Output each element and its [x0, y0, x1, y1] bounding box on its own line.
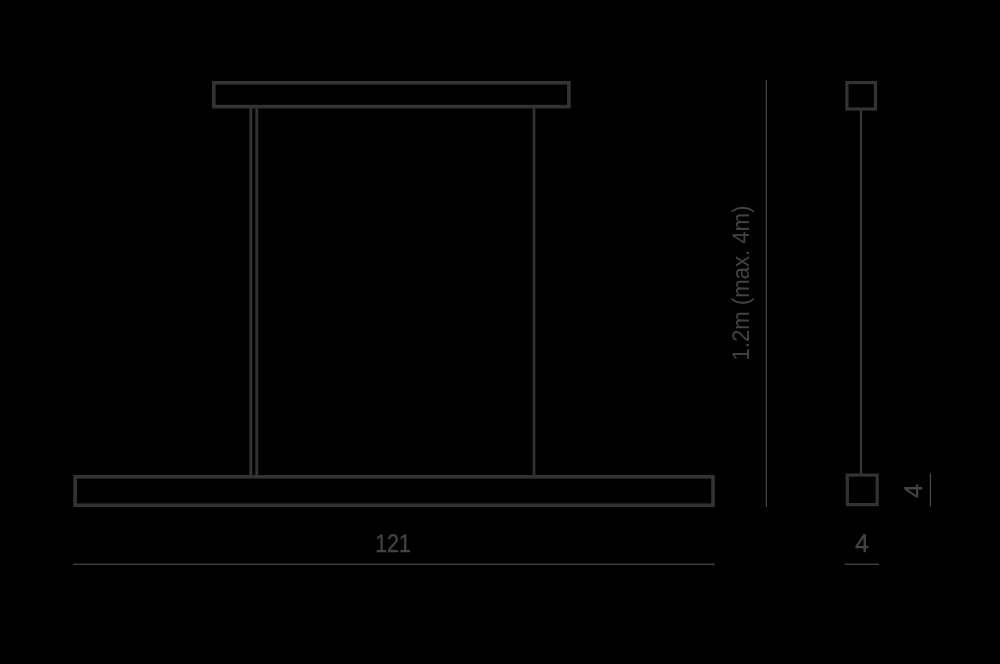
- svg-text:4: 4: [855, 530, 869, 558]
- svg-text:1.2m (max. 4m): 1.2m (max. 4m): [728, 206, 755, 361]
- svg-text:4: 4: [900, 484, 928, 498]
- svg-text:121: 121: [375, 530, 411, 558]
